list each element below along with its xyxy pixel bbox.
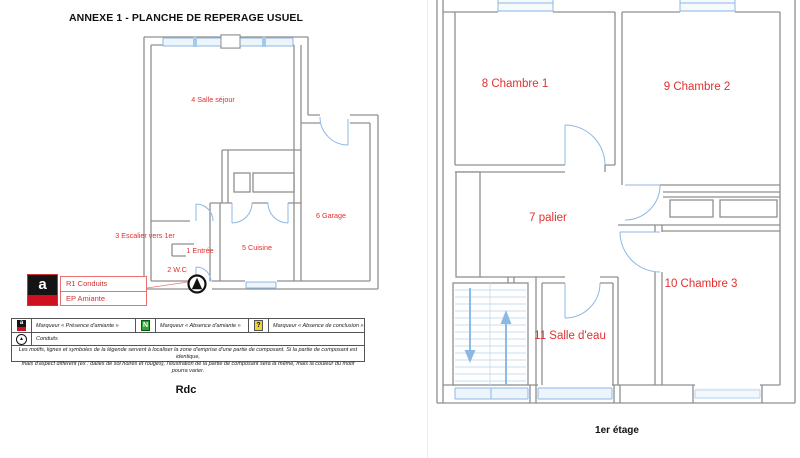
room-label-salle-eau: 11 Salle d'eau [480, 330, 660, 342]
conduits-marker [147, 276, 206, 293]
room-label-garage: 6 Garage [291, 211, 371, 220]
page-title: ANNEXE 1 - PLANCHE DE REPERAGE USUEL [36, 12, 336, 24]
legend-note: Les motifs, lignes et symboles de la lég… [12, 346, 364, 361]
caption-rdc: Rdc [136, 384, 236, 396]
absence-glyph: N [141, 320, 150, 331]
legend-conclusion-icon: ? [249, 319, 269, 332]
room-label-chambre3: 10 Chambre 3 [611, 278, 791, 290]
conclusion-glyph: ? [254, 320, 263, 331]
floorplan-document: ANNEXE 1 - PLANCHE DE REPERAGE USUEL 4 S… [0, 0, 800, 458]
room-label-wc: 2 W.C [137, 265, 217, 274]
callout-line-1: R1 Conduits [61, 277, 146, 292]
conduits-glyph: ▲ [16, 334, 27, 345]
legend-absence-label: Marqueur « Absence d'amiante » [156, 319, 249, 332]
room-label-palier: 7 palier [458, 212, 638, 224]
legend-conduits-icon: ▲ [12, 333, 32, 345]
legend-conclusion-label: Marqueur « Absence de conclusion » [269, 319, 364, 332]
etage-walls [437, 0, 795, 403]
room-label-chambre2: 9 Chambre 2 [607, 81, 787, 93]
legend-conduits-label: Conduits [32, 333, 364, 345]
legend-absence-icon: N [136, 319, 156, 332]
presence-marker-glyph: a [28, 275, 57, 295]
callout-line-2: EP Amiante [61, 292, 146, 306]
room-label-salle-sejour: 4 Salle séjour [153, 95, 273, 104]
caption-1er-etage: 1er étage [547, 425, 687, 436]
legend-presence-label: Marqueur « Présence d'amiante » [32, 319, 136, 332]
marker-callout: R1 Conduits EP Amiante [60, 276, 147, 306]
room-label-chambre1: 8 Chambre 1 [425, 78, 605, 90]
presence-glyph: a [17, 320, 26, 327]
legend-table: a Marqueur « Présence d'amiante » N Marq… [11, 318, 365, 362]
room-label-escalier: 3 Escalier vers 1er [85, 231, 205, 240]
floorplan-drawing [0, 0, 800, 458]
legend-note-line1: Les motifs, lignes et symboles de la lég… [19, 347, 357, 360]
room-label-cuisine: 5 Cuisine [217, 243, 297, 252]
presence-marker-icon: a [27, 274, 58, 306]
legend-presence-icon: a [12, 319, 32, 332]
